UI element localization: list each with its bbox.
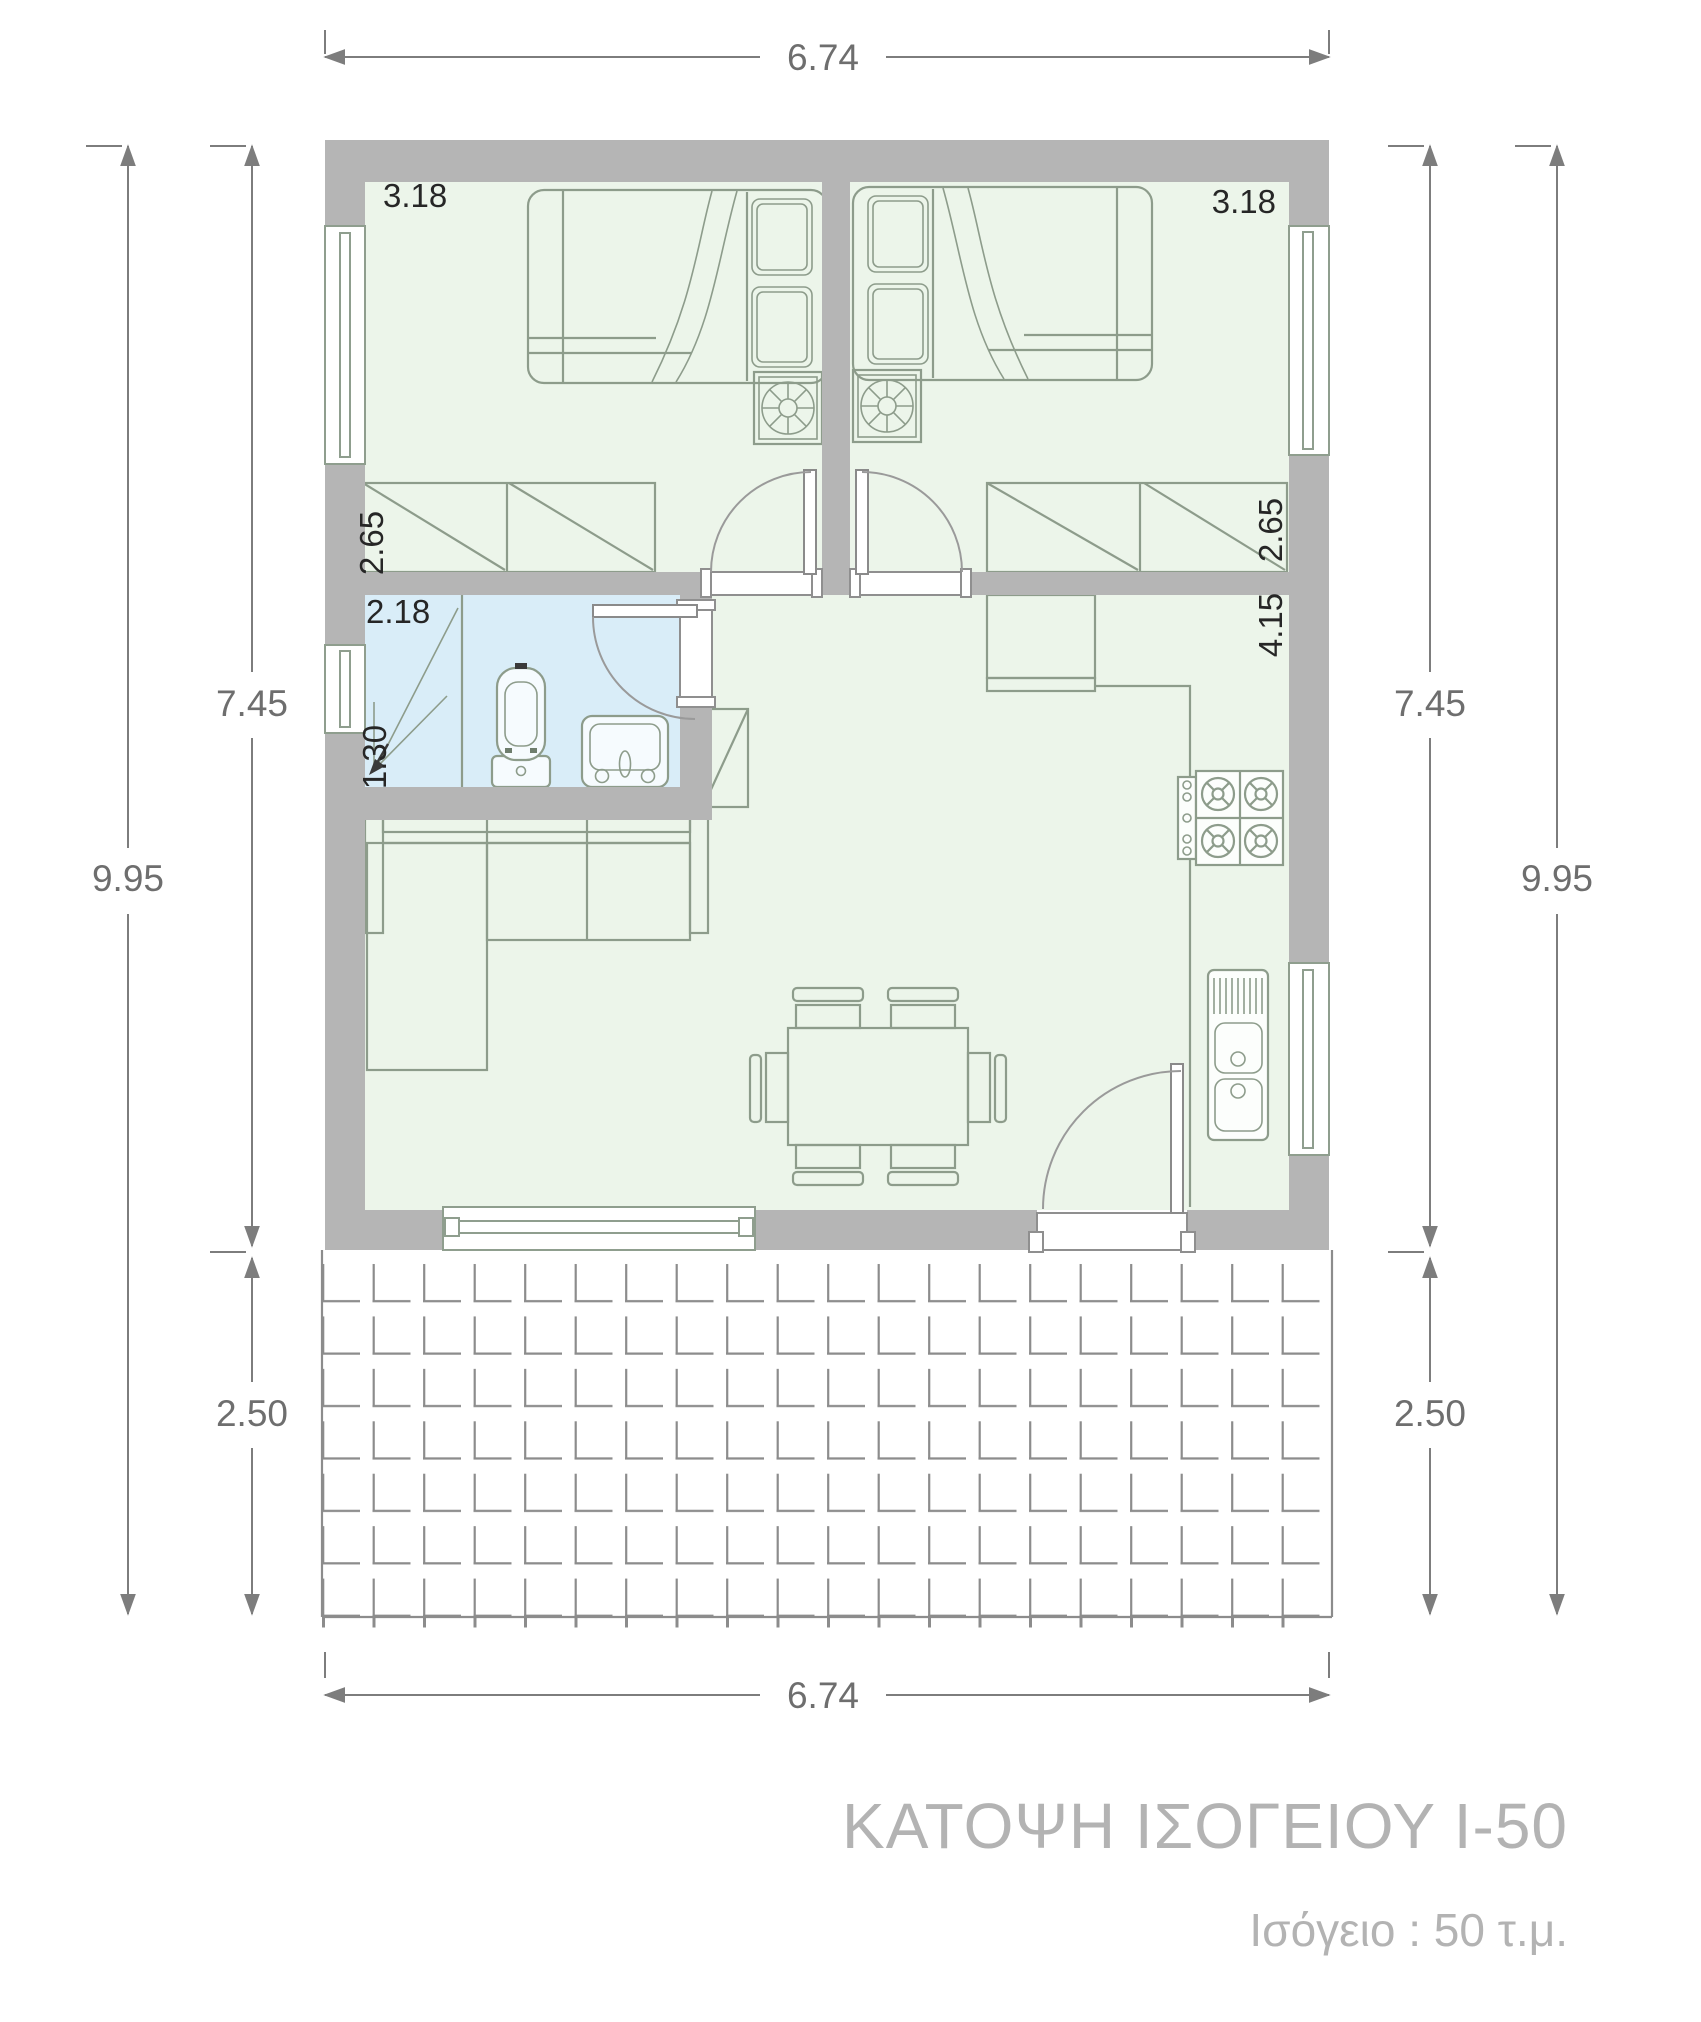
window-kitchen (1289, 963, 1329, 1155)
dim-right-lower: 2.50 (1388, 1252, 1466, 1614)
wall-bottom (755, 1210, 1037, 1250)
wall-right (1289, 455, 1329, 963)
window-bedroom1 (325, 226, 365, 464)
dim-right-upper: 7.45 (1388, 146, 1466, 1246)
wall-bedrooms-south (964, 572, 1289, 595)
dim-right-total: 9.95 (1515, 146, 1593, 1614)
wall-bottom (325, 1210, 443, 1250)
wall-right (1289, 140, 1329, 226)
patio-terrace (322, 1250, 1332, 1623)
washbasin (582, 716, 668, 787)
bedroom1-depth-label: 2.65 (353, 511, 390, 575)
dim-left-total-value: 9.95 (92, 858, 164, 899)
dim-right-upper-value: 7.45 (1394, 683, 1466, 724)
wall-bottom (1187, 1210, 1329, 1250)
bedroom1-width-label: 3.18 (383, 177, 447, 214)
title-block: ΚΑΤΟΨΗ ΙΣΟΓΕΙΟΥ Ι-50 Ισόγειο : 50 τ.μ. (842, 1790, 1568, 1956)
floor-plan-drawing: 3.18 3.18 2.65 2.65 2.18 1.30 4.15 6.74 … (0, 0, 1701, 2022)
wall-top (325, 140, 1329, 182)
bedroom2-width-label: 3.18 (1212, 183, 1276, 220)
dim-top-value: 6.74 (787, 37, 859, 78)
dim-top: 6.74 (325, 30, 1329, 78)
dim-left-lower: 2.50 (210, 1252, 288, 1614)
wall-bathroom-south (325, 787, 712, 820)
wall-left (325, 140, 365, 226)
window-bathroom (325, 645, 365, 733)
kitchen-sink (1208, 970, 1268, 1140)
dim-left-total: 9.95 (86, 146, 164, 1614)
window-bedroom2 (1289, 226, 1329, 455)
bathroom-width-label: 2.18 (366, 593, 430, 630)
wall-bedroom-divider (822, 182, 850, 572)
page-subtitle: Ισόγειο : 50 τ.μ. (1249, 1904, 1568, 1956)
bedroom2-depth-label: 2.65 (1252, 498, 1289, 562)
wall-bathroom-east (680, 700, 712, 787)
window-living (443, 1207, 755, 1250)
bathroom-depth-label: 1.30 (356, 725, 393, 789)
dim-bottom-value: 6.74 (787, 1675, 859, 1716)
dim-bottom: 6.74 (325, 1652, 1329, 1716)
page-title: ΚΑΤΟΨΗ ΙΣΟΓΕΙΟΥ Ι-50 (842, 1790, 1568, 1862)
toilet (492, 663, 550, 787)
dim-right-lower-value: 2.50 (1394, 1393, 1466, 1434)
dim-left-lower-value: 2.50 (216, 1393, 288, 1434)
stove (1178, 771, 1283, 865)
dim-left-upper-value: 7.45 (216, 683, 288, 724)
dim-right-total-value: 9.95 (1521, 858, 1593, 899)
wall-bedrooms-south (365, 572, 708, 595)
floor-plan-page: 3.18 3.18 2.65 2.65 2.18 1.30 4.15 6.74 … (0, 0, 1701, 2022)
dim-left-upper: 7.45 (210, 146, 288, 1246)
kitchen-depth-label: 4.15 (1252, 593, 1289, 657)
